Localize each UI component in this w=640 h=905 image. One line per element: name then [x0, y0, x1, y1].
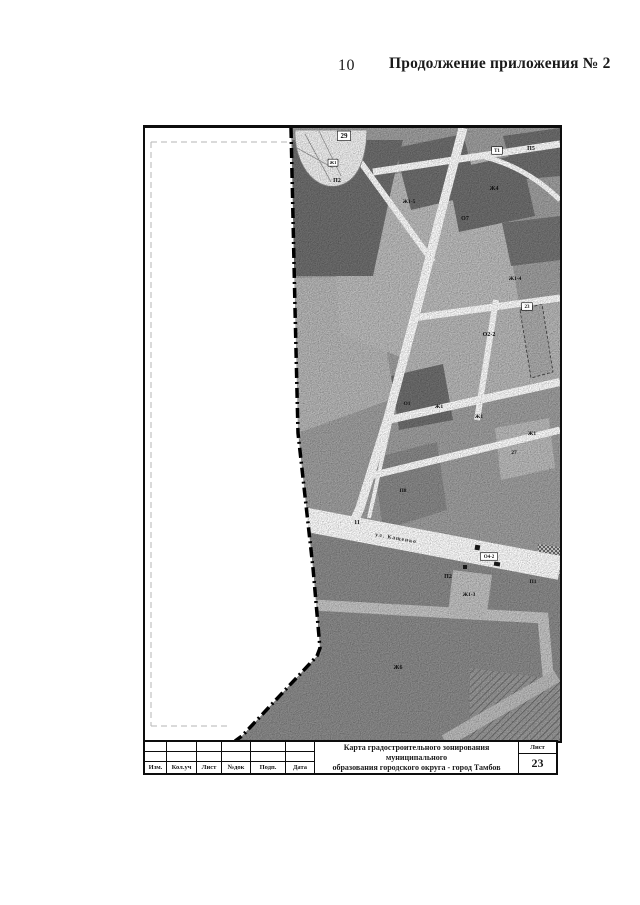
zone-label: 23 — [525, 305, 531, 310]
zone-label: Т1 — [494, 149, 500, 154]
title-line-1: Карта градостроительного зонирования мун… — [319, 743, 514, 763]
sheet-number: 23 — [519, 754, 556, 773]
zoned-area — [145, 128, 560, 741]
zone-label: О1 — [403, 401, 410, 407]
zone-label: П8 — [399, 488, 406, 494]
tb-col-label: Подп. — [251, 762, 285, 773]
tb-col-izm: Изм. — [145, 742, 167, 773]
zone-label: 27 — [511, 450, 517, 456]
map-neatline — [151, 142, 291, 726]
zone-label: Ж1 — [475, 414, 483, 420]
zone-label: О4-2 — [484, 555, 495, 560]
zone-label: Ж1 — [330, 160, 337, 165]
zone-label: Ж1-3 — [463, 592, 476, 598]
title-block: Изм. Кол.уч Лист №док Подп. Дата Карта г… — [143, 740, 558, 775]
zone-label: Ж1 — [528, 431, 536, 437]
zone-label: П2 — [444, 574, 452, 580]
tb-col-ndok: №док — [222, 742, 251, 773]
title-block-title: Карта градостроительного зонирования мун… — [315, 742, 518, 773]
zone-label: П1 — [529, 579, 536, 585]
zone-label: 29 — [341, 132, 349, 140]
zone-label: Ж1-4 — [509, 276, 522, 282]
zone-label: 11 — [354, 520, 360, 526]
tb-col-podp: Подп. — [251, 742, 286, 773]
zone-label: Ж4 — [490, 186, 499, 192]
tb-col-label: Изм. — [145, 762, 166, 773]
page-number: 10 — [338, 57, 355, 75]
zone-label: Ж1-5 — [403, 199, 416, 205]
zone-label: О7 — [461, 216, 469, 222]
title-block-columns: Изм. Кол.уч Лист №док Подп. Дата — [145, 742, 315, 773]
sheet-cell: Лист 23 — [518, 742, 556, 773]
zone-label: П5 — [527, 146, 535, 152]
tb-col-data: Дата — [286, 742, 315, 773]
header-title: Продолжение приложения № 2 — [389, 55, 611, 73]
tb-col-label: Лист — [197, 762, 221, 773]
sheet-label: Лист — [519, 742, 556, 754]
zone-label: П2 — [333, 178, 341, 184]
tb-col-label: Кол.уч — [167, 762, 196, 773]
tb-col-label: №док — [222, 762, 250, 773]
zone-label: Ж1 — [435, 404, 443, 410]
tb-col-label: Дата — [286, 762, 314, 773]
tb-col-koluch: Кол.уч — [167, 742, 197, 773]
title-line-2: образования городского округа - город Та… — [319, 763, 514, 773]
zone-label: Ж6 — [394, 665, 403, 671]
zoning-map: ул. Кащенко 29Ж1П2Ж1-5Т1П5Ж4О7Ж1-423О2-2… — [143, 125, 562, 743]
tb-col-list: Лист — [197, 742, 222, 773]
zone-label: О2-2 — [483, 332, 496, 338]
map-canvas: ул. Кащенко 29Ж1П2Ж1-5Т1П5Ж4О7Ж1-423О2-2… — [145, 128, 560, 741]
